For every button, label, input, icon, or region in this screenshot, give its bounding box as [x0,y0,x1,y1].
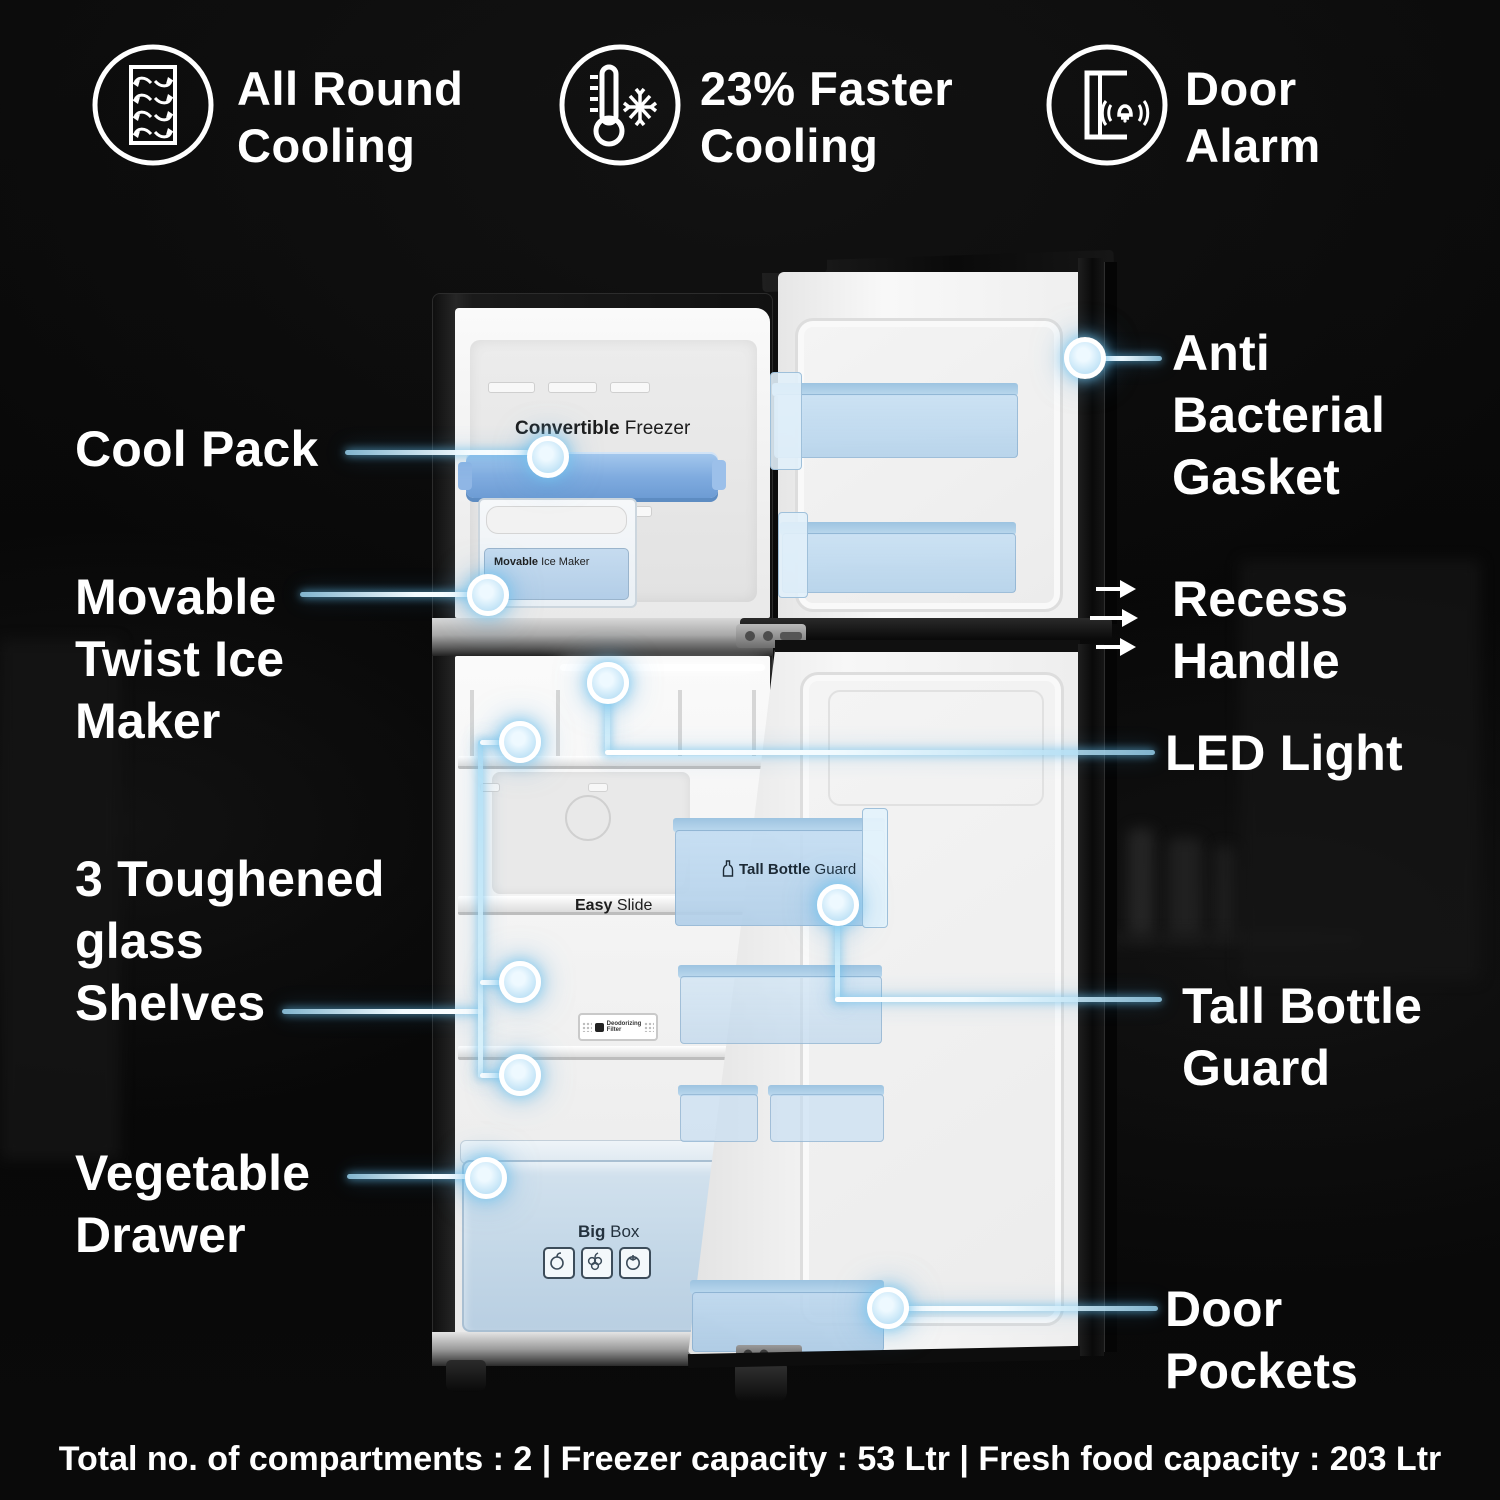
glass-shelf-1 [458,756,768,769]
fridge-door-bin [680,976,882,1044]
callout-label-line: Door [1165,1278,1358,1340]
feature-text-line: Door [1185,60,1321,117]
faster-cooling-icon [556,41,684,169]
fridge-door-inner-panel [828,690,1044,806]
filter-dots [644,1022,654,1032]
label-regular-part: Freezer [620,418,691,439]
callout-label-shelves: 3 Toughened glass Shelves [75,848,385,1034]
callout-label-line: 3 Toughened [75,848,385,910]
recess-handle-arrow [1088,607,1140,629]
callout-label-led-light: LED Light [1165,722,1403,784]
callout-label-line: Guard [1182,1037,1422,1099]
freezer-vent [548,382,597,393]
background-blur-shape [1214,846,1236,938]
label-bold-part: Easy [575,897,612,914]
fridge-fan-cover [565,795,611,841]
callout-line-bottle-guard [835,997,1162,1002]
callout-dot-shelf-1 [499,721,541,763]
feature-label-all-round-cooling: All Round Cooling [237,60,463,174]
background-blur-shape [1168,838,1202,938]
callout-line-led [605,750,1155,755]
door-alarm-icon [1043,41,1171,169]
callout-line-ice-maker [300,592,492,597]
callout-dot-ice-maker [467,574,509,616]
filter-chip [595,1023,604,1032]
callout-label-cool-pack: Cool Pack [75,418,319,480]
callout-connector-shelves [478,740,483,1078]
cool-pack-edge [458,462,472,490]
callout-dot-shelf-2 [499,961,541,1003]
bottle-guard-endcap [862,808,888,928]
label-bold-part: Movable [494,556,538,568]
callout-label-recess-handle: Recess Handle [1172,568,1348,692]
callout-dot-gasket [1064,337,1106,379]
fridge-vent [588,783,608,792]
callout-label-line: glass [75,910,385,972]
callout-label-line: Pockets [1165,1340,1358,1402]
shelf-post [470,690,474,760]
callout-label-line: Maker [75,690,284,752]
bottle-icon [722,860,734,878]
callout-label-bottle-guard: Tall Bottle Guard [1182,975,1422,1099]
recess-handle-arrow [1094,636,1138,658]
callout-label-line: Movable [75,566,284,628]
all-round-cooling-icon [89,41,217,169]
freezer-door-bin-endcap [770,372,802,470]
filter-text: Deodorizing Filter [607,1021,642,1033]
shelf-post [556,690,560,760]
infographic-canvas: All Round Cooling 23% Faster Cooling [0,0,1500,1500]
easy-slide-label: Easy Slide [575,897,652,915]
label-bold-part: Convertible [515,418,620,439]
callout-dot-led [587,662,629,704]
callout-dot-cool-pack [527,436,569,478]
filter-dots [582,1022,592,1032]
feature-label-faster-cooling: 23% Faster Cooling [700,60,953,174]
bigbox-tomato-icon [619,1247,651,1279]
cool-pack-edge [712,460,726,490]
deodorizing-filter: Deodorizing Filter [578,1013,658,1041]
filter-text-line: Filter [607,1027,622,1033]
freezer-vent [488,382,535,393]
callout-label-ice-maker: Movable Twist Ice Maker [75,566,284,752]
label-bold-part: Tall Bottle [739,861,810,878]
callout-label-line: LED Light [1165,722,1403,784]
callout-label-line: Gasket [1172,446,1385,508]
callout-label-line: Drawer [75,1204,310,1266]
label-regular-part: Guard [810,861,856,878]
feature-text-line: 23% Faster [700,60,953,117]
feature-text-line: Alarm [1185,117,1321,174]
callout-dot-bottle-guard [817,884,859,926]
spec-summary-text: Total no. of compartments : 2 | Freezer … [0,1440,1500,1479]
feature-text-line: All Round [237,60,463,117]
label-regular-part: Slide [612,897,652,914]
label-regular-part: Ice Maker [538,556,589,568]
fridge-vent [480,783,500,792]
callout-label-line: Vegetable [75,1142,310,1204]
small-door-bin [680,1094,758,1142]
callout-label-door-pockets: Door Pockets [1165,1278,1358,1402]
small-door-bin [770,1094,884,1142]
bigbox-grapes-icon [581,1247,613,1279]
cool-pack [466,452,718,498]
callout-label-line: Anti [1172,322,1385,384]
ice-maker-label: Movable Ice Maker [494,556,589,568]
callout-line-cool-pack [345,450,552,455]
fridge-foot [735,1362,787,1402]
freezer-door-hinge-top [735,247,827,273]
callout-label-vegetable-drawer: Vegetable Drawer [75,1142,310,1266]
recess-handle-arrow [1094,578,1138,600]
callout-label-line: Tall Bottle [1182,975,1422,1037]
callout-label-line: Recess [1172,568,1348,630]
freezer-vent [610,382,650,393]
callout-label-gasket: Anti Bacterial Gasket [1172,322,1385,508]
callout-label-line: Cool Pack [75,418,319,480]
tall-bottle-guard-label: Tall Bottle Guard [722,860,856,878]
feature-text-line: Cooling [237,117,463,174]
door-pocket-bin [692,1292,884,1352]
compartment-divider [432,618,773,656]
freezer-door-right-edge [1078,258,1104,626]
background-blur-shape [1128,828,1154,938]
callout-label-line: Twist Ice [75,628,284,690]
fridge-door-top-edge [775,640,1080,652]
fridge-foot [446,1360,486,1392]
callout-label-line: Bacterial [1172,384,1385,446]
callout-label-line: Handle [1172,630,1348,692]
feature-text-line: Cooling [700,117,953,174]
bigbox-fruit-icon [543,1247,575,1279]
big-box-label: Big Box [578,1222,639,1242]
callout-label-line: Shelves [75,972,385,1034]
callout-line-door-pockets [893,1306,1158,1311]
glass-shelf-3 [458,1046,768,1060]
label-bold-part: Big [578,1222,605,1241]
freezer-door-bin [774,394,1018,458]
freezer-door-outer-edge [1104,262,1117,624]
freezer-door-bin [782,533,1016,593]
label-regular-part: Box [605,1222,639,1241]
callout-dot-door-pockets [867,1287,909,1329]
feature-label-door-alarm: Door Alarm [1185,60,1321,174]
callout-dot-shelf-3 [499,1054,541,1096]
freezer-door-bin-endcap [778,512,808,598]
ice-maker-lid [486,506,627,534]
callout-dot-vegetable-drawer [465,1157,507,1199]
